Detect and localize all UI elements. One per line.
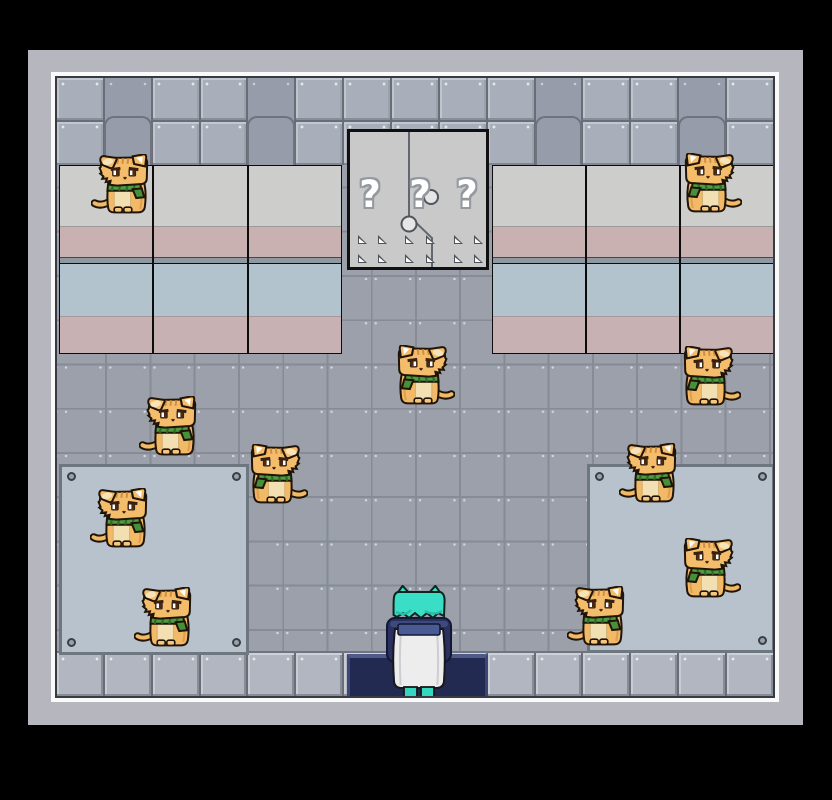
cat-sprite[interactable] [240,444,308,506]
cat-sprite[interactable] [619,443,687,505]
room-floor: ? ? ? [55,76,775,698]
game-viewport[interactable]: ? ? ? [0,0,832,800]
player-character [385,585,453,698]
cat-sprite[interactable] [673,538,741,600]
cat-sprite[interactable] [674,153,742,215]
entity-layer [57,78,773,696]
cat-sprite[interactable] [91,154,159,216]
cat-sprite[interactable] [387,345,455,407]
cat-sprite[interactable] [134,587,202,649]
cat-sprite[interactable] [567,586,635,648]
cat-sprite[interactable] [673,346,741,408]
cat-sprite[interactable] [90,488,158,550]
cat-sprite[interactable] [139,396,207,458]
